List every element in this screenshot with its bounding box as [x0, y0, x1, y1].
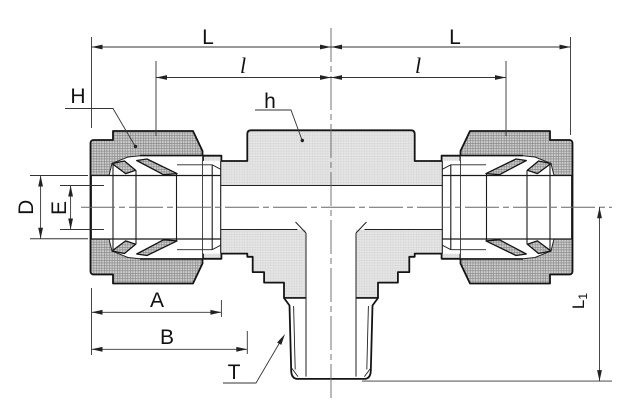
svg-text:l: l [415, 53, 421, 78]
svg-text:E: E [48, 201, 71, 215]
svg-text:D: D [15, 200, 38, 215]
svg-text:B: B [160, 326, 174, 349]
svg-text:A: A [150, 289, 164, 312]
svg-text:L: L [449, 26, 461, 49]
svg-text:L: L [202, 26, 214, 49]
svg-text:H: H [70, 85, 85, 108]
svg-text:l: l [240, 53, 246, 78]
svg-text:T: T [228, 361, 241, 384]
